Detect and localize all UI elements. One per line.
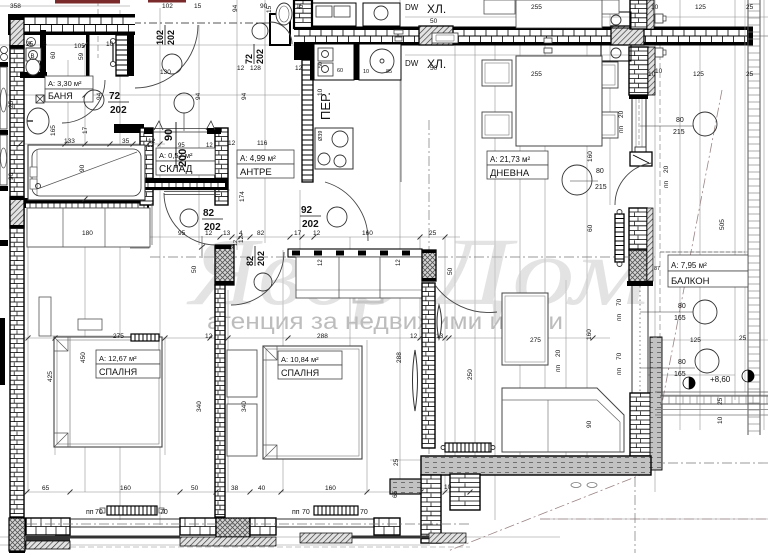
svg-text:12: 12 (313, 230, 321, 237)
svg-text:А: 12,67 м²: А: 12,67 м² (99, 354, 137, 363)
svg-text:25: 25 (393, 458, 400, 466)
svg-text:13: 13 (223, 230, 231, 237)
svg-text:94: 94 (232, 4, 239, 12)
svg-text:288: 288 (396, 352, 403, 363)
svg-text:72: 72 (109, 91, 121, 102)
svg-text:А: 4,99 м²: А: 4,99 м² (240, 154, 276, 163)
svg-text:12: 12 (318, 259, 324, 266)
svg-text:358: 358 (10, 3, 21, 10)
svg-text:15: 15 (296, 3, 304, 10)
svg-text:288: 288 (317, 333, 328, 340)
svg-text:5: 5 (43, 41, 47, 48)
svg-text:250: 250 (467, 369, 474, 380)
svg-text:50: 50 (447, 267, 454, 275)
svg-text:ДНЕВНА: ДНЕВНА (490, 168, 530, 179)
svg-text:90: 90 (586, 420, 593, 428)
svg-text:пп: пп (616, 367, 623, 375)
svg-text:94: 94 (96, 92, 103, 100)
svg-text:10: 10 (363, 69, 369, 75)
svg-text:12: 12 (205, 230, 213, 237)
svg-text:40: 40 (258, 485, 266, 492)
svg-text:25: 25 (746, 4, 754, 11)
svg-text:35: 35 (122, 138, 130, 145)
svg-text:102: 102 (155, 30, 165, 45)
svg-text:пп: пп (292, 509, 300, 516)
svg-text:70: 70 (95, 509, 103, 516)
svg-text:275: 275 (530, 337, 541, 344)
svg-text:130: 130 (160, 69, 171, 76)
svg-text:200: 200 (177, 149, 189, 167)
svg-text:82: 82 (245, 256, 255, 266)
svg-text:25: 25 (8, 100, 15, 108)
svg-text:60: 60 (50, 51, 57, 59)
svg-text:25: 25 (429, 230, 437, 237)
svg-text:DW: DW (405, 59, 419, 68)
svg-text:165: 165 (50, 125, 57, 136)
svg-text:450: 450 (80, 352, 87, 363)
svg-text:38: 38 (231, 485, 239, 492)
svg-text:50: 50 (318, 62, 324, 68)
svg-text:505: 505 (719, 219, 726, 230)
svg-text:425: 425 (47, 371, 54, 382)
svg-text:174: 174 (239, 191, 246, 202)
svg-text:25: 25 (717, 397, 724, 405)
svg-text:50: 50 (191, 265, 198, 273)
svg-text:А: 7,95 м²: А: 7,95 м² (671, 261, 707, 270)
svg-text:20: 20 (618, 110, 625, 118)
svg-text:165: 165 (674, 315, 686, 322)
svg-text:12: 12 (148, 138, 156, 145)
svg-text:10: 10 (317, 88, 324, 96)
svg-text:80: 80 (678, 303, 686, 310)
svg-text:202: 202 (255, 49, 265, 64)
svg-text:82: 82 (257, 230, 265, 237)
svg-text:160: 160 (586, 329, 593, 340)
svg-text:125: 125 (693, 71, 704, 78)
svg-text:72: 72 (244, 54, 254, 64)
svg-text:+8,60: +8,60 (710, 375, 731, 384)
svg-text:10: 10 (444, 484, 452, 491)
svg-text:92: 92 (301, 205, 313, 216)
svg-text:202: 202 (110, 105, 127, 116)
svg-text:12: 12 (237, 65, 245, 72)
svg-text:90: 90 (8, 172, 15, 180)
svg-text:82: 82 (203, 208, 215, 219)
svg-text:СПАЛНЯ: СПАЛНЯ (99, 367, 137, 377)
svg-text:160: 160 (325, 485, 336, 492)
svg-text:65: 65 (392, 490, 399, 498)
svg-text:пп: пп (86, 509, 94, 516)
svg-text:10: 10 (651, 4, 659, 11)
svg-text:70: 70 (360, 509, 368, 516)
svg-text:125: 125 (690, 337, 701, 344)
svg-text:70: 70 (616, 298, 623, 306)
svg-text:12: 12 (396, 259, 402, 266)
svg-text:50: 50 (191, 485, 199, 492)
svg-text:пп: пп (616, 313, 623, 321)
svg-text:ХЛ.: ХЛ. (427, 2, 446, 16)
svg-text:DW: DW (405, 3, 419, 12)
svg-text:160: 160 (120, 485, 131, 492)
svg-text:116: 116 (257, 140, 268, 147)
svg-text:160: 160 (362, 230, 373, 237)
svg-text:80: 80 (596, 168, 604, 175)
svg-text:202: 202 (166, 30, 176, 45)
svg-text:20: 20 (555, 349, 562, 357)
svg-text:90: 90 (163, 129, 175, 141)
svg-text:10: 10 (106, 41, 114, 48)
svg-text:10: 10 (648, 71, 656, 78)
svg-text:В: В (31, 54, 35, 60)
svg-text:БАНЯ: БАНЯ (48, 91, 73, 101)
svg-text:пп: пп (663, 180, 670, 188)
svg-text:10: 10 (717, 416, 724, 424)
svg-text:17: 17 (82, 126, 89, 134)
svg-text:102: 102 (162, 3, 173, 10)
svg-text:А: 3,30 м²: А: 3,30 м² (48, 79, 82, 88)
svg-text:А: 21,73 м²: А: 21,73 м² (490, 155, 531, 164)
svg-text:94: 94 (241, 92, 248, 100)
svg-text:255: 255 (531, 4, 542, 11)
svg-text:80: 80 (678, 359, 686, 366)
svg-text:60: 60 (587, 224, 594, 232)
svg-text:80: 80 (676, 117, 684, 124)
svg-text:12: 12 (228, 140, 236, 147)
svg-text:215: 215 (673, 129, 685, 136)
svg-text:90: 90 (79, 164, 86, 172)
svg-text:165: 165 (674, 371, 686, 378)
svg-text:12: 12 (295, 65, 303, 72)
svg-text:160: 160 (587, 151, 594, 162)
svg-text:70: 70 (302, 509, 310, 516)
svg-text:пп: пп (555, 364, 562, 372)
svg-text:94: 94 (195, 92, 202, 100)
svg-text:25: 25 (26, 41, 34, 48)
svg-text:25: 25 (739, 335, 747, 342)
svg-text:180: 180 (82, 230, 93, 237)
svg-text:65: 65 (42, 485, 50, 492)
svg-text:СПАЛНЯ: СПАЛНЯ (281, 368, 319, 378)
svg-text:128: 128 (250, 65, 261, 72)
svg-text:АНТРЕ: АНТРЕ (240, 167, 272, 178)
svg-text:20: 20 (663, 165, 670, 173)
svg-text:125: 125 (695, 4, 706, 11)
svg-text:255: 255 (531, 71, 542, 78)
svg-text:15: 15 (266, 5, 273, 13)
svg-text:12: 12 (233, 240, 239, 246)
svg-text:275: 275 (113, 333, 124, 340)
svg-text:340: 340 (196, 401, 203, 412)
svg-text:95: 95 (178, 230, 186, 237)
svg-text:85: 85 (386, 69, 392, 75)
svg-text:15: 15 (194, 3, 202, 10)
svg-text:60: 60 (337, 68, 343, 74)
svg-text:340: 340 (241, 401, 248, 412)
svg-text:БАЛКОН: БАЛКОН (671, 276, 710, 287)
svg-text:215: 215 (595, 184, 607, 191)
svg-text:12: 12 (410, 333, 418, 340)
svg-text:17: 17 (294, 230, 302, 237)
svg-text:13: 13 (436, 333, 444, 340)
svg-text:59: 59 (78, 52, 85, 60)
svg-text:87: 87 (654, 266, 660, 272)
svg-text:70: 70 (160, 509, 168, 516)
svg-text:202: 202 (256, 251, 266, 266)
svg-text:А: 10,84 м²: А: 10,84 м² (281, 355, 319, 364)
svg-text:10: 10 (655, 68, 663, 75)
svg-text:пп: пп (618, 125, 625, 133)
svg-text:25: 25 (746, 71, 754, 78)
svg-text:Ø39: Ø39 (318, 131, 324, 141)
svg-text:ХЛ.: ХЛ. (427, 57, 446, 71)
svg-text:50: 50 (430, 18, 438, 25)
svg-text:70: 70 (616, 352, 623, 360)
svg-text:202: 202 (302, 219, 319, 230)
